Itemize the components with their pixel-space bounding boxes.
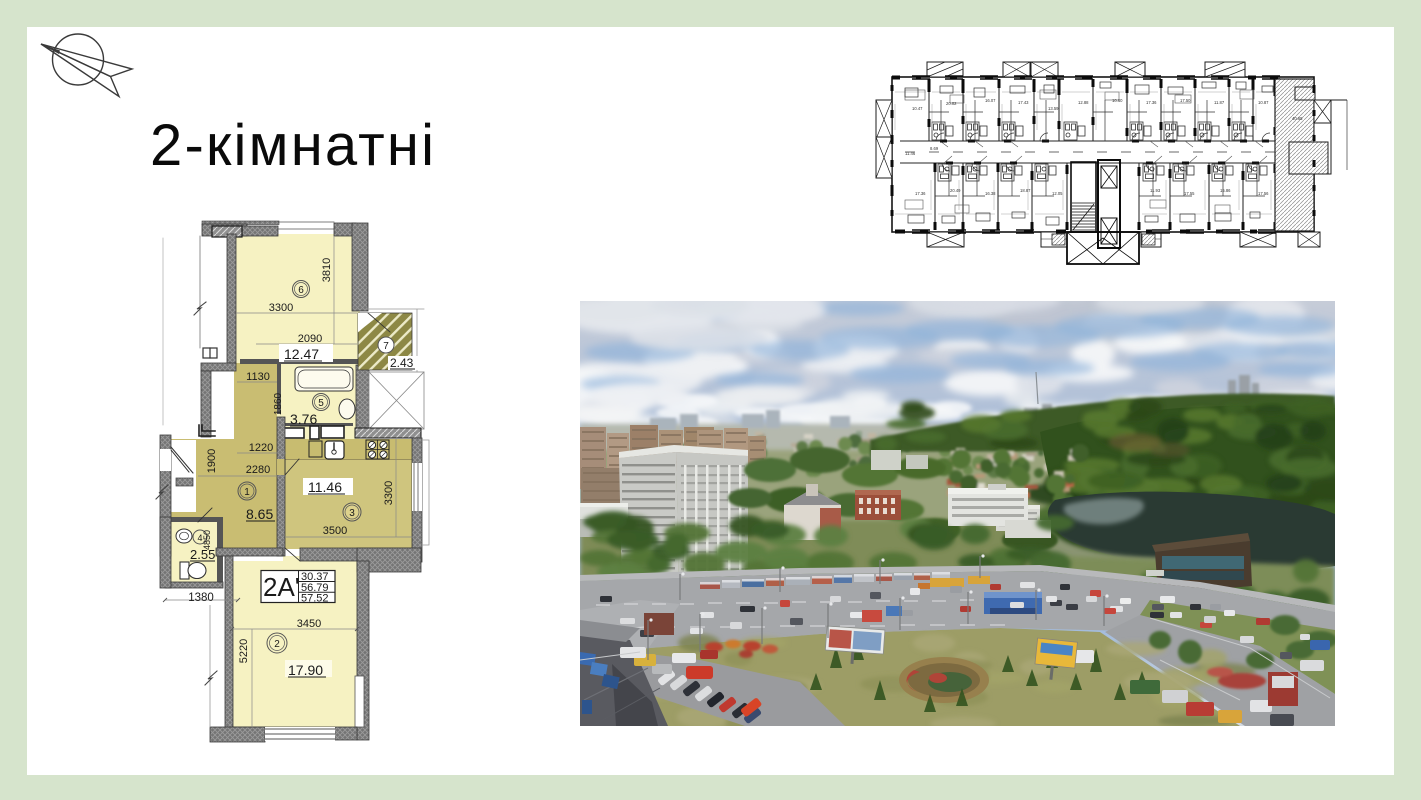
svg-text:1220: 1220: [249, 442, 273, 454]
svg-text:12.47: 12.47: [284, 346, 319, 362]
svg-text:10.47: 10.47: [912, 106, 923, 111]
svg-text:3300: 3300: [383, 481, 395, 505]
svg-text:12.88: 12.88: [1078, 100, 1089, 105]
svg-text:17.36: 17.36: [915, 191, 926, 196]
svg-text:3500: 3500: [323, 525, 347, 537]
svg-text:1380: 1380: [188, 592, 214, 604]
svg-text:7: 7: [383, 341, 389, 352]
svg-text:1860: 1860: [273, 392, 284, 415]
svg-text:12.05: 12.05: [1052, 191, 1063, 196]
svg-text:57.52: 57.52: [301, 593, 329, 605]
svg-text:20.49: 20.49: [950, 188, 961, 193]
svg-text:6: 6: [298, 285, 304, 296]
svg-text:20.02: 20.02: [946, 101, 957, 106]
svg-text:3: 3: [349, 508, 355, 519]
svg-text:18.87: 18.87: [1020, 188, 1031, 193]
svg-text:8.69: 8.69: [930, 146, 939, 151]
svg-text:3.76: 3.76: [290, 411, 317, 427]
svg-text:17.56: 17.56: [1258, 191, 1269, 196]
svg-text:16.07: 16.07: [985, 98, 996, 103]
svg-text:2090: 2090: [298, 333, 322, 345]
svg-text:8.65: 8.65: [246, 506, 273, 522]
svg-text:16.38: 16.38: [985, 191, 996, 196]
svg-text:17.55: 17.55: [1184, 191, 1195, 196]
svg-text:5: 5: [318, 398, 324, 409]
svg-text:2280: 2280: [246, 464, 270, 476]
svg-text:17.36: 17.36: [1146, 100, 1157, 105]
svg-text:1: 1: [244, 487, 250, 498]
svg-text:3450: 3450: [297, 618, 321, 630]
svg-text:5220: 5220: [238, 639, 250, 663]
svg-text:13.59: 13.59: [1048, 106, 1059, 111]
svg-text:2.43: 2.43: [390, 356, 414, 370]
svg-text:3810: 3810: [321, 258, 333, 282]
svg-text:17.90: 17.90: [288, 662, 323, 678]
svg-text:1130: 1130: [246, 371, 270, 383]
svg-text:10.60: 10.60: [1112, 98, 1123, 103]
svg-text:2-кімнатні: 2-кімнатні: [150, 113, 436, 178]
svg-text:15.86: 15.86: [1220, 188, 1231, 193]
svg-text:11.46: 11.46: [308, 479, 342, 495]
svg-text:17.50: 17.50: [1180, 98, 1191, 103]
svg-text:40.65: 40.65: [1292, 116, 1303, 121]
svg-text:10.87: 10.87: [1258, 100, 1269, 105]
svg-text:1900: 1900: [206, 449, 218, 473]
svg-text:11.87: 11.87: [1214, 100, 1225, 105]
svg-text:2.55: 2.55: [190, 547, 215, 562]
svg-text:3300: 3300: [269, 302, 293, 314]
svg-text:2: 2: [274, 639, 280, 650]
svg-text:17.43: 17.43: [1018, 100, 1029, 105]
svg-text:2A': 2A': [263, 572, 300, 602]
svg-text:11.93: 11.93: [1150, 188, 1161, 193]
